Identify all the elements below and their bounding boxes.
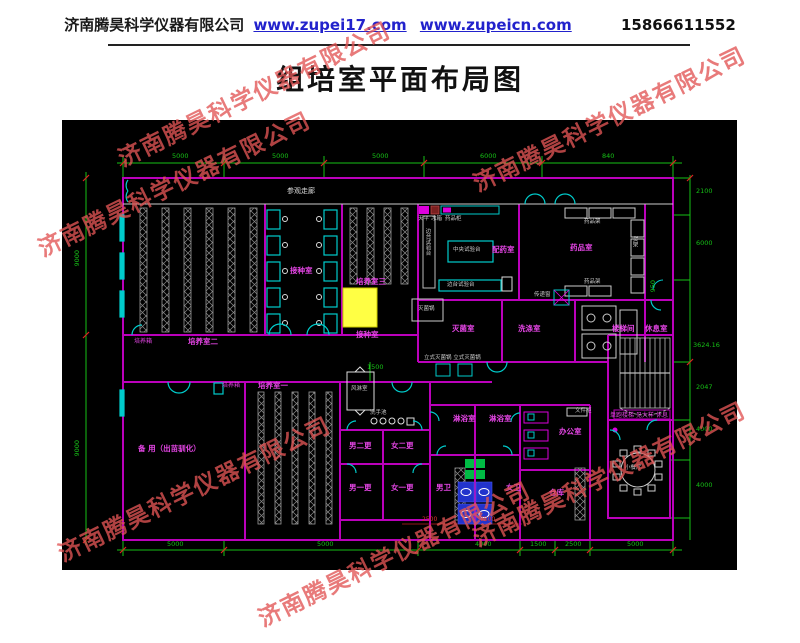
plan-label: 药品柜 bbox=[445, 217, 462, 223]
plan-label: 1500 bbox=[367, 364, 384, 371]
plan-label: 培养箱 bbox=[134, 339, 152, 345]
plan-label: 5000 bbox=[372, 153, 389, 160]
plan-label: 2500 bbox=[565, 541, 582, 548]
plan-label: 灭菌室 bbox=[452, 325, 475, 333]
page-title: 组培室平面布局图 bbox=[0, 58, 800, 98]
plan-label: 2100 bbox=[696, 188, 713, 195]
plan-label: 灭菌锅 bbox=[418, 307, 435, 313]
plan-label: 货架 bbox=[631, 236, 637, 247]
plan-label: 9000 bbox=[74, 440, 81, 457]
plan-label: 5000 bbox=[317, 541, 334, 548]
floor-plan-canvas: 参观走廊培养室二培养箱接种室培养室三接种室配药室药品室灭菌室洗涤室楼梯间休息室培… bbox=[62, 120, 737, 570]
plan-label: 小餐厅 bbox=[625, 466, 642, 472]
plan-label: 2500 bbox=[422, 517, 437, 523]
plan-label: 药品室 bbox=[570, 244, 593, 252]
plan-label: 中央试验台 bbox=[453, 248, 481, 254]
plan-label: 洗手池 bbox=[370, 411, 387, 417]
plan-label: 接种室 bbox=[356, 331, 379, 339]
header-divider bbox=[108, 44, 690, 46]
plan-label: 2047 bbox=[696, 384, 713, 391]
plan-label: 办公室 bbox=[559, 428, 582, 436]
plan-label: 5000 bbox=[172, 153, 189, 160]
plan-label: 1500 bbox=[530, 541, 547, 548]
plan-label: 6000 bbox=[480, 153, 497, 160]
stairs bbox=[620, 338, 670, 415]
highlight-square bbox=[343, 288, 377, 327]
plan-label: 4000 bbox=[696, 426, 713, 433]
plan-label: 冰箱 bbox=[431, 217, 442, 223]
floor-plan-svg bbox=[62, 120, 737, 570]
plan-label: 男卫 bbox=[436, 484, 451, 492]
plan-label: 女二更 bbox=[391, 442, 414, 450]
plan-label: 5000 bbox=[167, 541, 184, 548]
plan-label: 840 bbox=[602, 153, 614, 160]
plan-label: 楼梯间 bbox=[612, 325, 635, 333]
medicine-shelves bbox=[565, 208, 644, 296]
plan-label: 文件柜 bbox=[575, 409, 592, 415]
plan-label: 女一更 bbox=[391, 484, 414, 492]
plan-label: 4000 bbox=[696, 482, 713, 489]
plan-label: 风淋室 bbox=[351, 387, 368, 393]
plan-label: 传递窗 bbox=[534, 293, 551, 299]
plan-label: 药品架 bbox=[584, 220, 601, 226]
plan-label: 配药室 bbox=[492, 246, 515, 254]
header: 济南腾昊科学仪器有限公司 www.zupei17.com www.zupeicn… bbox=[0, 14, 800, 35]
plan-label: 立式灭菌锅 立式灭菌锅 bbox=[424, 356, 481, 362]
plan-label: 女卫 bbox=[506, 484, 521, 492]
plan-label: 边台试验台 bbox=[447, 283, 475, 289]
plan-label: 男二更 bbox=[349, 442, 372, 450]
plan-label: 休息室 bbox=[645, 325, 668, 333]
plan-label: 参观走廊 bbox=[287, 188, 315, 195]
company-name: 济南腾昊科学仪器有限公司 bbox=[64, 16, 244, 34]
plan-label: 男一更 bbox=[349, 484, 372, 492]
plan-label: 3624.16 bbox=[693, 342, 720, 349]
plan-label: 仓库 bbox=[549, 489, 564, 497]
plan-label: 9000 bbox=[74, 250, 81, 267]
plan-label: 淋浴室 bbox=[489, 415, 512, 423]
plan-label: 5000 bbox=[627, 541, 644, 548]
plan-label: 950 bbox=[650, 280, 657, 292]
plan-label: 天平 bbox=[418, 217, 429, 223]
plan-label: 接种室 bbox=[290, 267, 313, 275]
plan-label: 洗涤室 bbox=[518, 325, 541, 333]
plan-label: 培养室一 bbox=[258, 382, 288, 390]
link-zupeicn[interactable]: www.zupeicn.com bbox=[420, 16, 572, 34]
plan-label: 药品架 bbox=[584, 280, 601, 286]
plan-label: 4000 bbox=[475, 541, 492, 548]
plan-label: 单跑楼梯 见大样 休息 bbox=[610, 413, 668, 419]
plan-label: 培养室二 bbox=[188, 338, 218, 346]
phone-number: 15866611552 bbox=[621, 16, 736, 34]
plan-label: 备 用（出苗驯化） bbox=[138, 445, 201, 453]
link-zupei17[interactable]: www.zupei17.com bbox=[253, 16, 406, 34]
washing-equipment bbox=[412, 290, 637, 376]
plan-label: 边台试验台 bbox=[424, 228, 430, 256]
plan-label: 6000 bbox=[696, 240, 713, 247]
plan-label: 培养室三 bbox=[356, 278, 386, 286]
plan-label: 7500 bbox=[480, 517, 495, 523]
plan-label: 5000 bbox=[272, 153, 289, 160]
plan-label: 培养箱 bbox=[222, 383, 240, 389]
plan-label: 淋浴室 bbox=[453, 415, 476, 423]
